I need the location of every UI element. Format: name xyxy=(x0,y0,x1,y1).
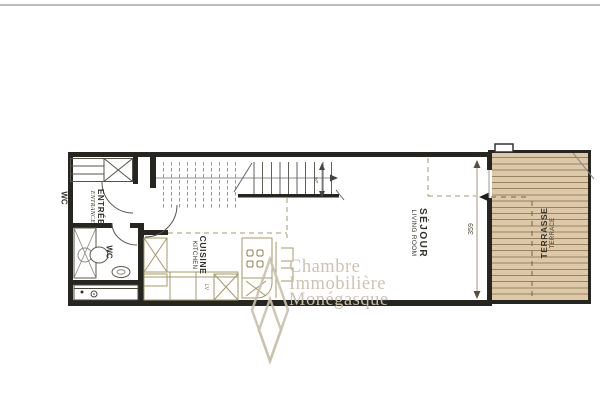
diamond-logo-icon xyxy=(252,259,288,361)
watermark: Chambre Immobilière Monégasque xyxy=(289,259,389,309)
watermark-logo-layer xyxy=(0,0,600,400)
floor-plan: WC ENTRÉE ENTRANCE WC CUISINE KITCHEN SÉ… xyxy=(0,0,600,400)
watermark-line3: Monégasque xyxy=(289,292,389,309)
